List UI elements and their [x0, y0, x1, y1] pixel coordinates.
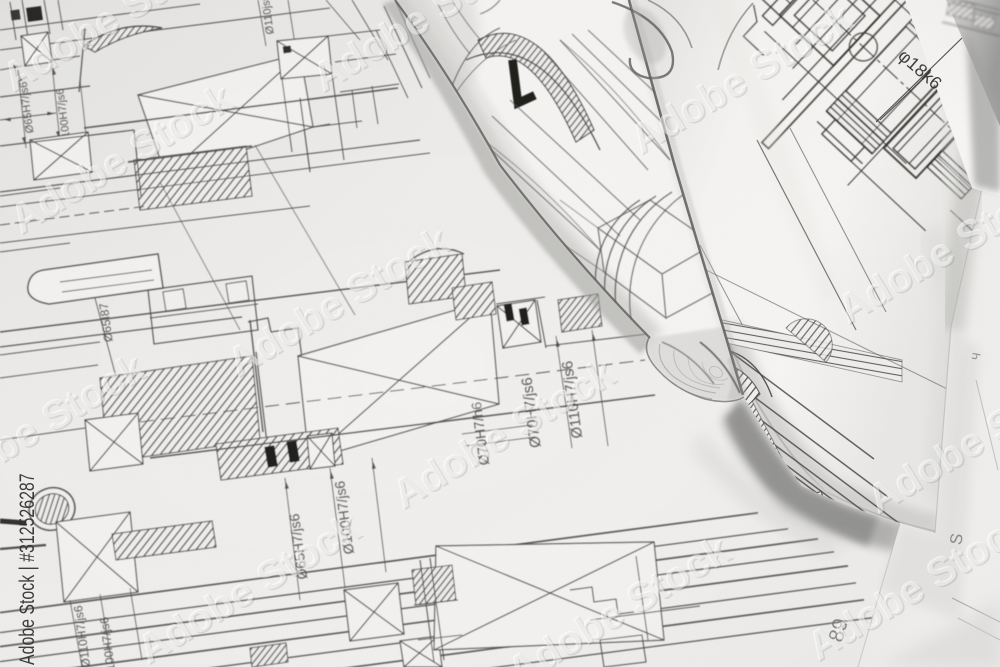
svg-text:Adobe Stock | #312526287: Adobe Stock | #312526287	[16, 473, 40, 665]
